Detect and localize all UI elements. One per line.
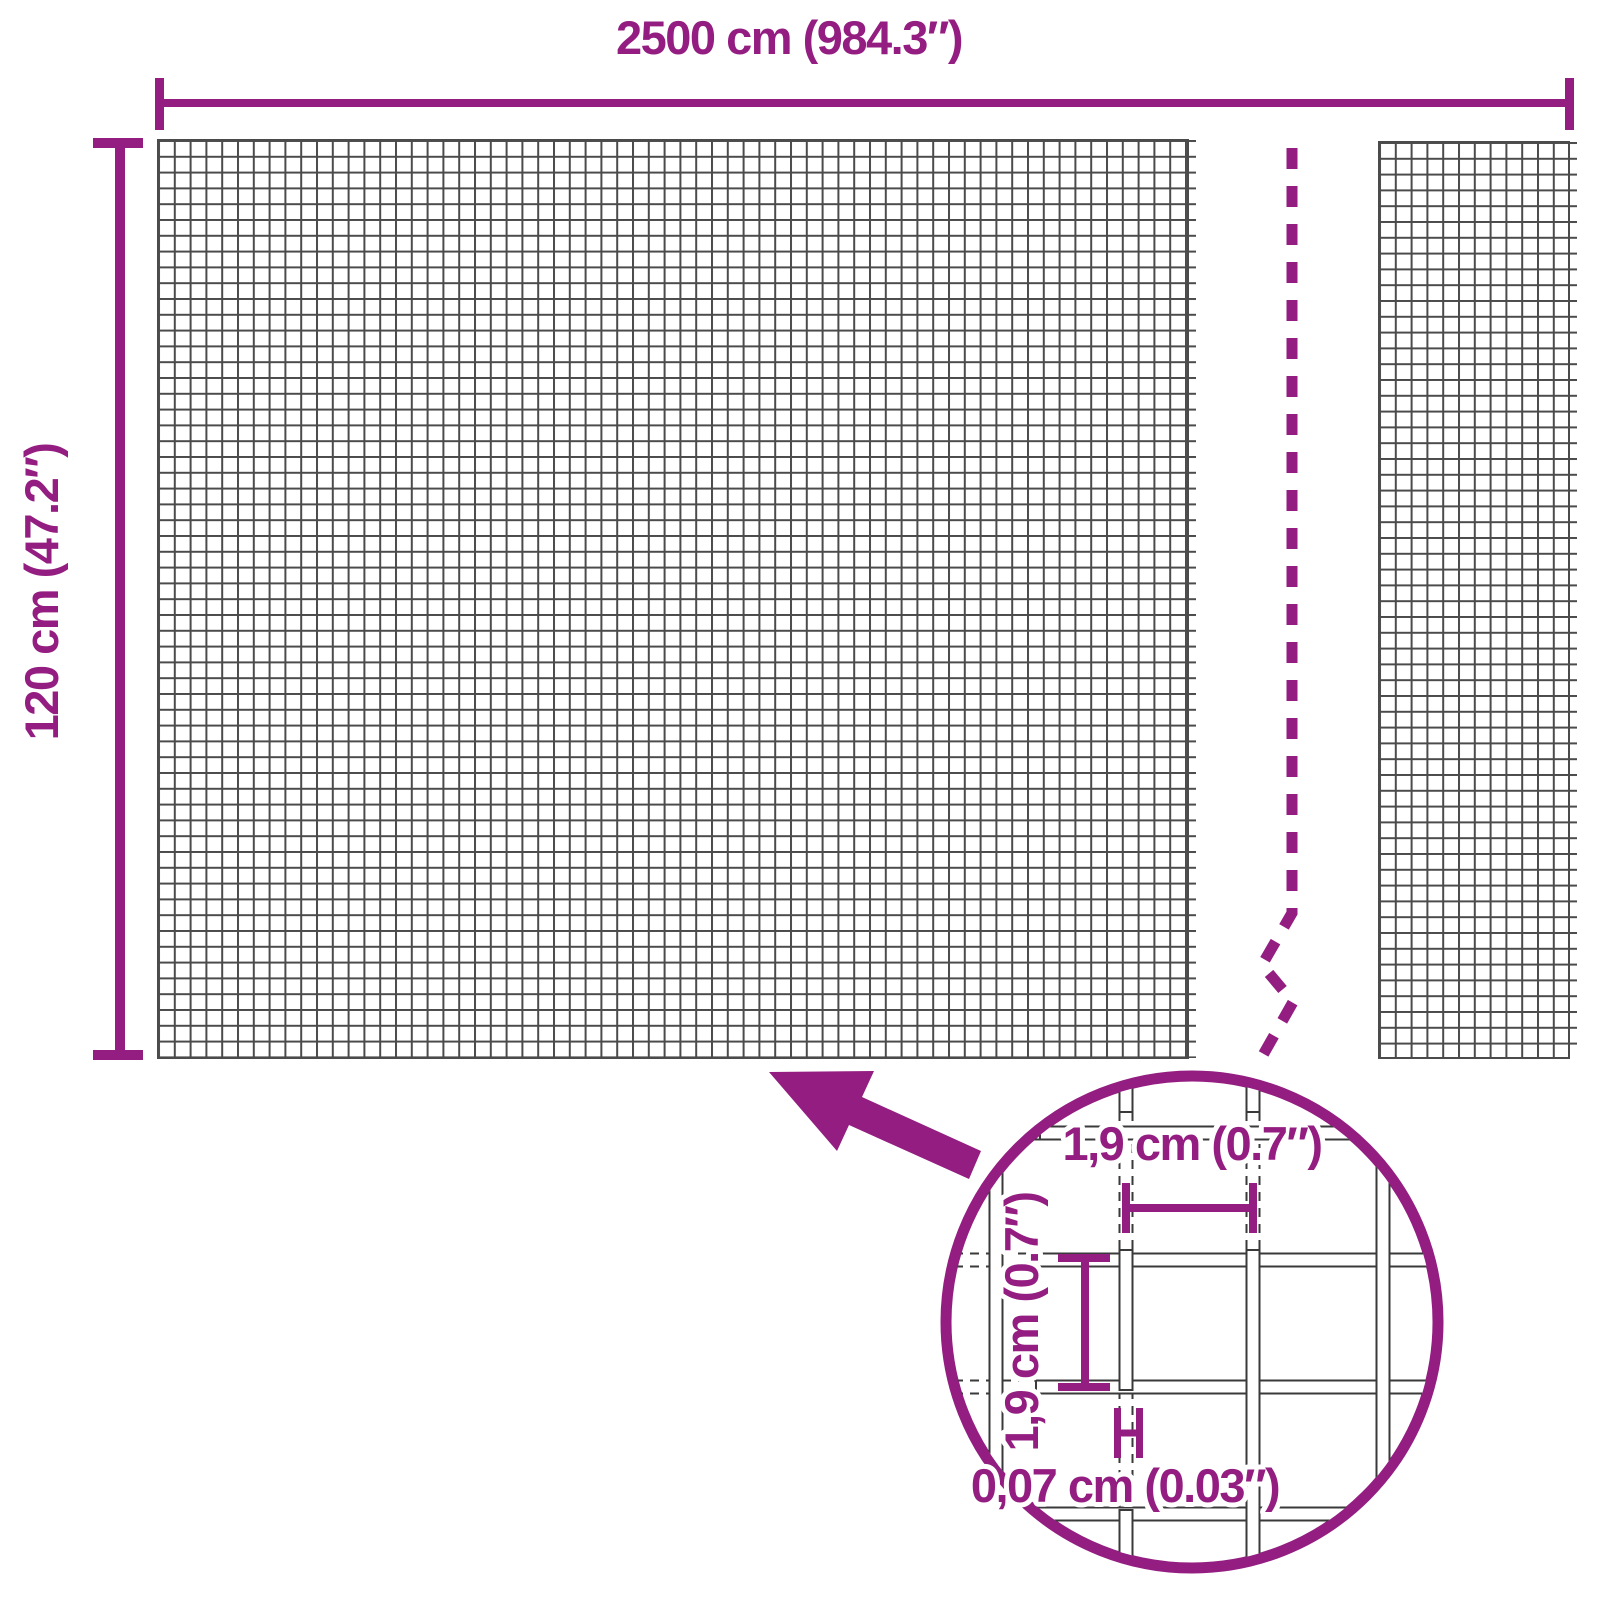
height-dimension: 120 cm (47.2″): [15, 138, 143, 1060]
mesh-cut-stubs-left-panel: [1188, 140, 1196, 1058]
mesh-panel-continued: [1379, 142, 1577, 1058]
height-dimension-tick-top: [93, 138, 143, 148]
product-dimension-diagram: 2500 cm (984.3″) 120 cm (47.2″): [0, 0, 1600, 1600]
diagram-canvas: 2500 cm (984.3″) 120 cm (47.2″): [0, 0, 1600, 1600]
width-dimension-tick-left: [155, 78, 164, 130]
height-dimension-tick-bottom: [93, 1050, 143, 1060]
width-dimension-label: 2500 cm (984.3″): [616, 11, 962, 64]
mesh-opening-height-label: 1,9 cm (0.7″): [995, 1192, 1048, 1451]
zoom-arrow-icon: [769, 1071, 981, 1179]
wire-thickness-label: 0,07 cm (0.03″): [971, 1459, 1279, 1512]
break-line: [1262, 148, 1293, 1055]
detail-circle: 1,9 cm (0.7″) 1,9 cm (0.7″) 0,07 cm (0.0…: [946, 1076, 1440, 1570]
width-dimension-tick-right: [1565, 78, 1574, 130]
mesh-opening-width-label: 1,9 cm (0.7″): [1062, 1117, 1321, 1170]
width-dimension: 2500 cm (984.3″): [155, 11, 1574, 130]
mesh-cut-stubs-right-panel: [1569, 142, 1577, 1058]
height-dimension-label: 120 cm (47.2″): [15, 444, 68, 741]
mesh-panel-main: [158, 140, 1196, 1058]
